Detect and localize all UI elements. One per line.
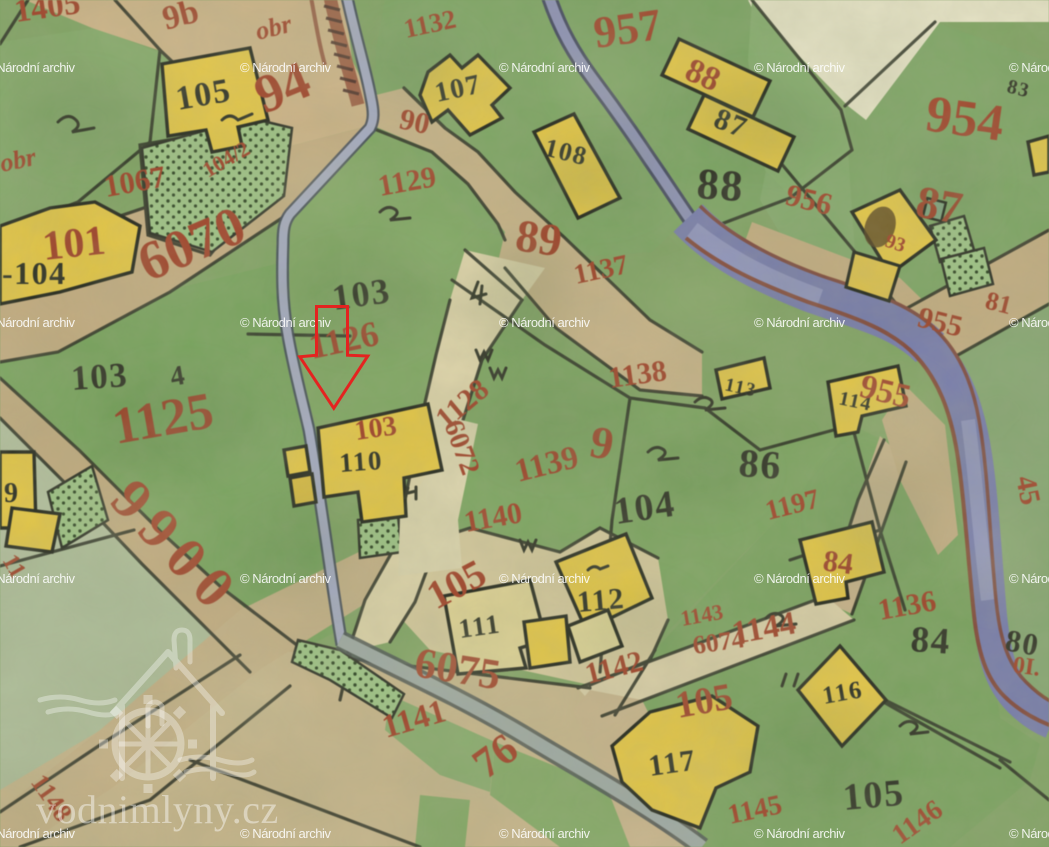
svg-text:© Národní archiv: © Národní archiv [499,60,590,75]
svg-text:© Národní archiv: © Národní archiv [754,826,845,841]
svg-text:vodnimlyny.cz: vodnimlyny.cz [36,787,279,832]
svg-text:© Národní archiv: © Národní archiv [754,60,845,75]
svg-text:© Národní archiv: © Národní archiv [499,315,590,330]
svg-text:© Národní archiv: © Národní archiv [1009,315,1049,330]
svg-text:© Národní archiv: © Národní archiv [240,571,331,586]
svg-text:© Národní archiv: © Národní archiv [754,315,845,330]
svg-text:© Národní archiv: © Národní archiv [0,315,75,330]
svg-text:© Národní archiv: © Národní archiv [1009,826,1049,841]
svg-text:© Národní archiv: © Národní archiv [754,571,845,586]
svg-text:© Národní archiv: © Národní archiv [1009,60,1049,75]
svg-text:© Národní archiv: © Národní archiv [499,571,590,586]
svg-text:© Národní archiv: © Národní archiv [1009,571,1049,586]
svg-text:© Národní archiv: © Národní archiv [240,60,331,75]
svg-text:© Národní archiv: © Národní archiv [0,571,75,586]
svg-text:© Národní archiv: © Národní archiv [0,60,75,75]
svg-text:© Národní archiv: © Národní archiv [499,826,590,841]
